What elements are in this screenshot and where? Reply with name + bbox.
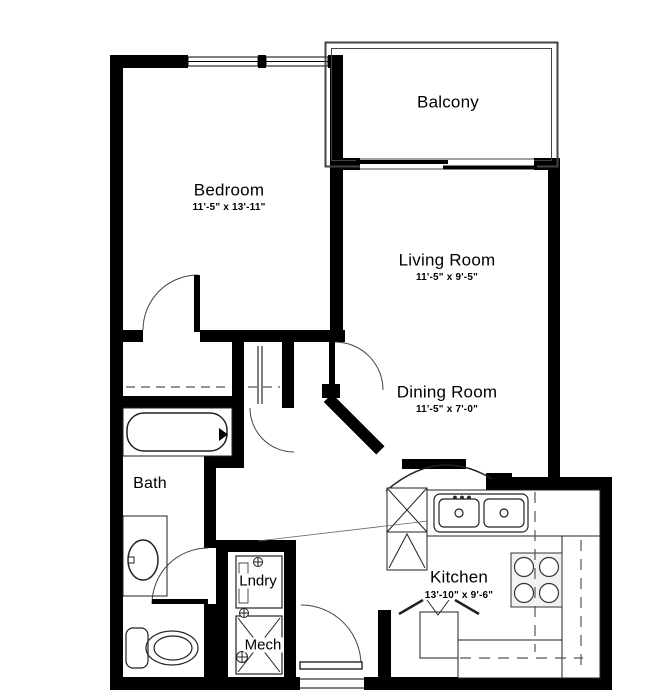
dining-door-leaf: [329, 342, 335, 392]
dining-room-label: Dining Room: [397, 384, 497, 401]
dining-door-arc: [335, 342, 383, 390]
bathtub-icon: [123, 408, 232, 456]
kitchen-dims-label: 13'-10" x 9'-6": [425, 591, 493, 601]
living-room-dims-label: 11'-5" x 9'-5": [416, 273, 478, 283]
balcony-room-label: Balcony: [417, 94, 479, 111]
entry-door-leaf: [300, 662, 362, 669]
sliding-glass-door-icon: [356, 158, 537, 170]
tall-cabinet-icon: [387, 532, 427, 570]
floor-plan-linework: [0, 0, 650, 700]
bedroom-door-leaf: [194, 275, 200, 332]
entry-door-arc: [301, 605, 361, 665]
toilet-icon: [126, 628, 198, 668]
floor-plan: Bedroom 11'-5" x 13'-11" Balcony Living …: [0, 0, 650, 700]
bedroom-dims-label: 11'-5" x 13'-11": [192, 203, 265, 213]
bath-room-label: Bath: [133, 476, 167, 492]
range-stove-icon: [511, 553, 562, 607]
bedroom-door-arc: [143, 275, 198, 330]
bedroom-windows-icon: [188, 57, 328, 66]
linen-closet-door-arc: [250, 408, 294, 452]
bath-door-leaf: [152, 599, 208, 604]
dining-room-dims-label: 11'-5" x 7'-0": [416, 405, 478, 415]
vanity-sink-icon: [123, 516, 167, 596]
laundry-room-label: Lndry: [238, 574, 278, 589]
bedroom-room-label: Bedroom: [194, 182, 264, 199]
kitchen-room-label: Kitchen: [430, 569, 488, 586]
living-room-label: Living Room: [399, 252, 496, 269]
mech-room-label: Mech: [244, 638, 283, 653]
